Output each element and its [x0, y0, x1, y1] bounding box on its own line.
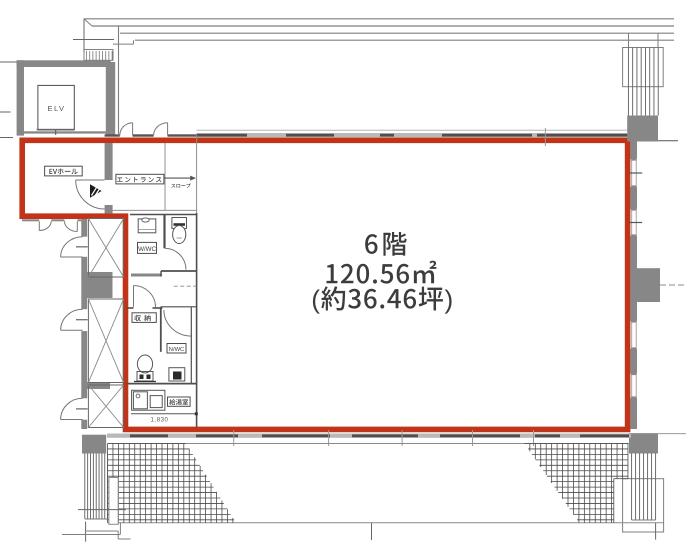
- svg-text:N/WC: N/WC: [169, 347, 184, 353]
- svg-text:W/WC: W/WC: [138, 246, 156, 253]
- svg-text:1,830: 1,830: [150, 418, 168, 424]
- svg-text:ELV: ELV: [47, 104, 65, 113]
